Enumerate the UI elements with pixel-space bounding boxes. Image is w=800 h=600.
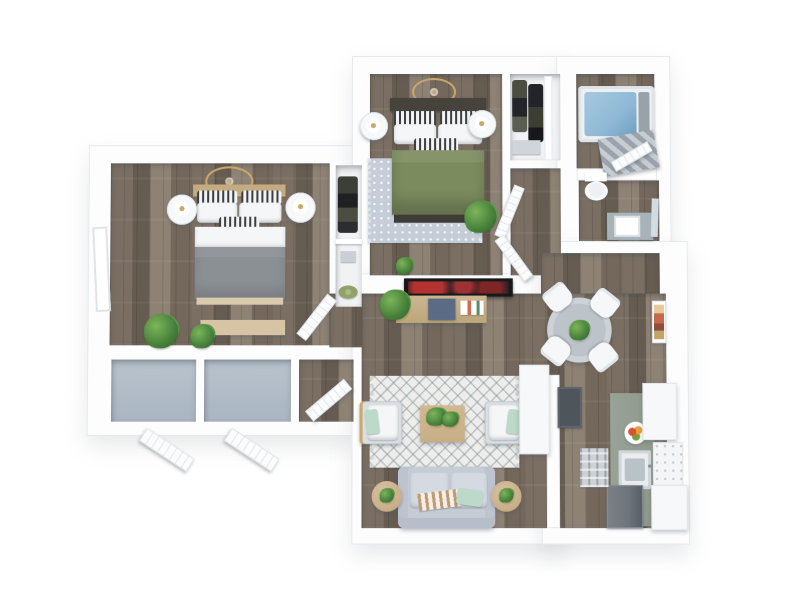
dining-wall-art-image	[654, 305, 664, 340]
tv-screen-content	[408, 281, 509, 293]
bedroom2-lamp-left-icon	[366, 118, 381, 133]
bedroom1-duvet-gray	[195, 247, 286, 300]
vanity-mirror	[651, 198, 659, 237]
closet-cell2-floor	[204, 360, 291, 422]
toilet-bowl	[585, 181, 608, 200]
bedroom2-plant-small	[396, 257, 413, 274]
closet-cell1-floor	[111, 360, 196, 422]
armchair-left-mint-pillow	[364, 409, 380, 435]
bedroom1-footboard	[197, 298, 284, 305]
side-table-left-plant	[380, 488, 394, 502]
closet2-hanging-clothes-b	[528, 84, 543, 142]
kitchen-stove	[558, 387, 582, 428]
toilet-tank	[585, 172, 607, 181]
bathtub-water	[584, 92, 636, 136]
closet1-shelf	[336, 239, 362, 244]
kitchen-lower-cabinets	[651, 485, 688, 530]
console-storage-box	[428, 299, 455, 320]
bedroom1-plant-small	[190, 324, 214, 348]
kitchen-floor-mat	[580, 448, 609, 487]
closet2-shelf	[544, 76, 552, 160]
apartment-plan	[0, 0, 800, 600]
side-table-right-plant	[499, 488, 513, 502]
vanity-sink	[614, 216, 640, 237]
bedroom2-headboard	[390, 98, 486, 111]
bedroom1-sheet	[195, 227, 286, 249]
closet2-hanging-clothes-a	[512, 80, 527, 132]
refrigerator	[607, 485, 644, 528]
kitchen-upper-cabinets	[642, 383, 677, 440]
dining-centerpiece-plant	[569, 320, 589, 340]
bedroom1-plant-large	[144, 314, 179, 349]
console-books	[460, 301, 483, 315]
closet1-hat	[339, 285, 358, 298]
closet1-storage-box	[341, 251, 356, 262]
kitchen-peninsula-counter	[519, 365, 550, 455]
sofa-mint-pillow	[456, 487, 484, 507]
bedroom1-lamp-left-icon	[174, 201, 190, 217]
coffee-table-plant-b	[442, 411, 458, 426]
bedroom1-lamp-right-icon	[292, 199, 308, 215]
bedroom2-plant	[464, 201, 496, 233]
kitchen-backsplash-tile	[653, 442, 684, 487]
closet1-hanging-clothes	[338, 176, 358, 232]
closet2-storage-box	[512, 140, 540, 154]
living-monstera-plant	[380, 290, 410, 320]
kitchen-sink-basin	[625, 458, 645, 481]
bedroom2-lamp-right-icon	[474, 116, 489, 131]
floorplan-render	[0, 0, 800, 600]
